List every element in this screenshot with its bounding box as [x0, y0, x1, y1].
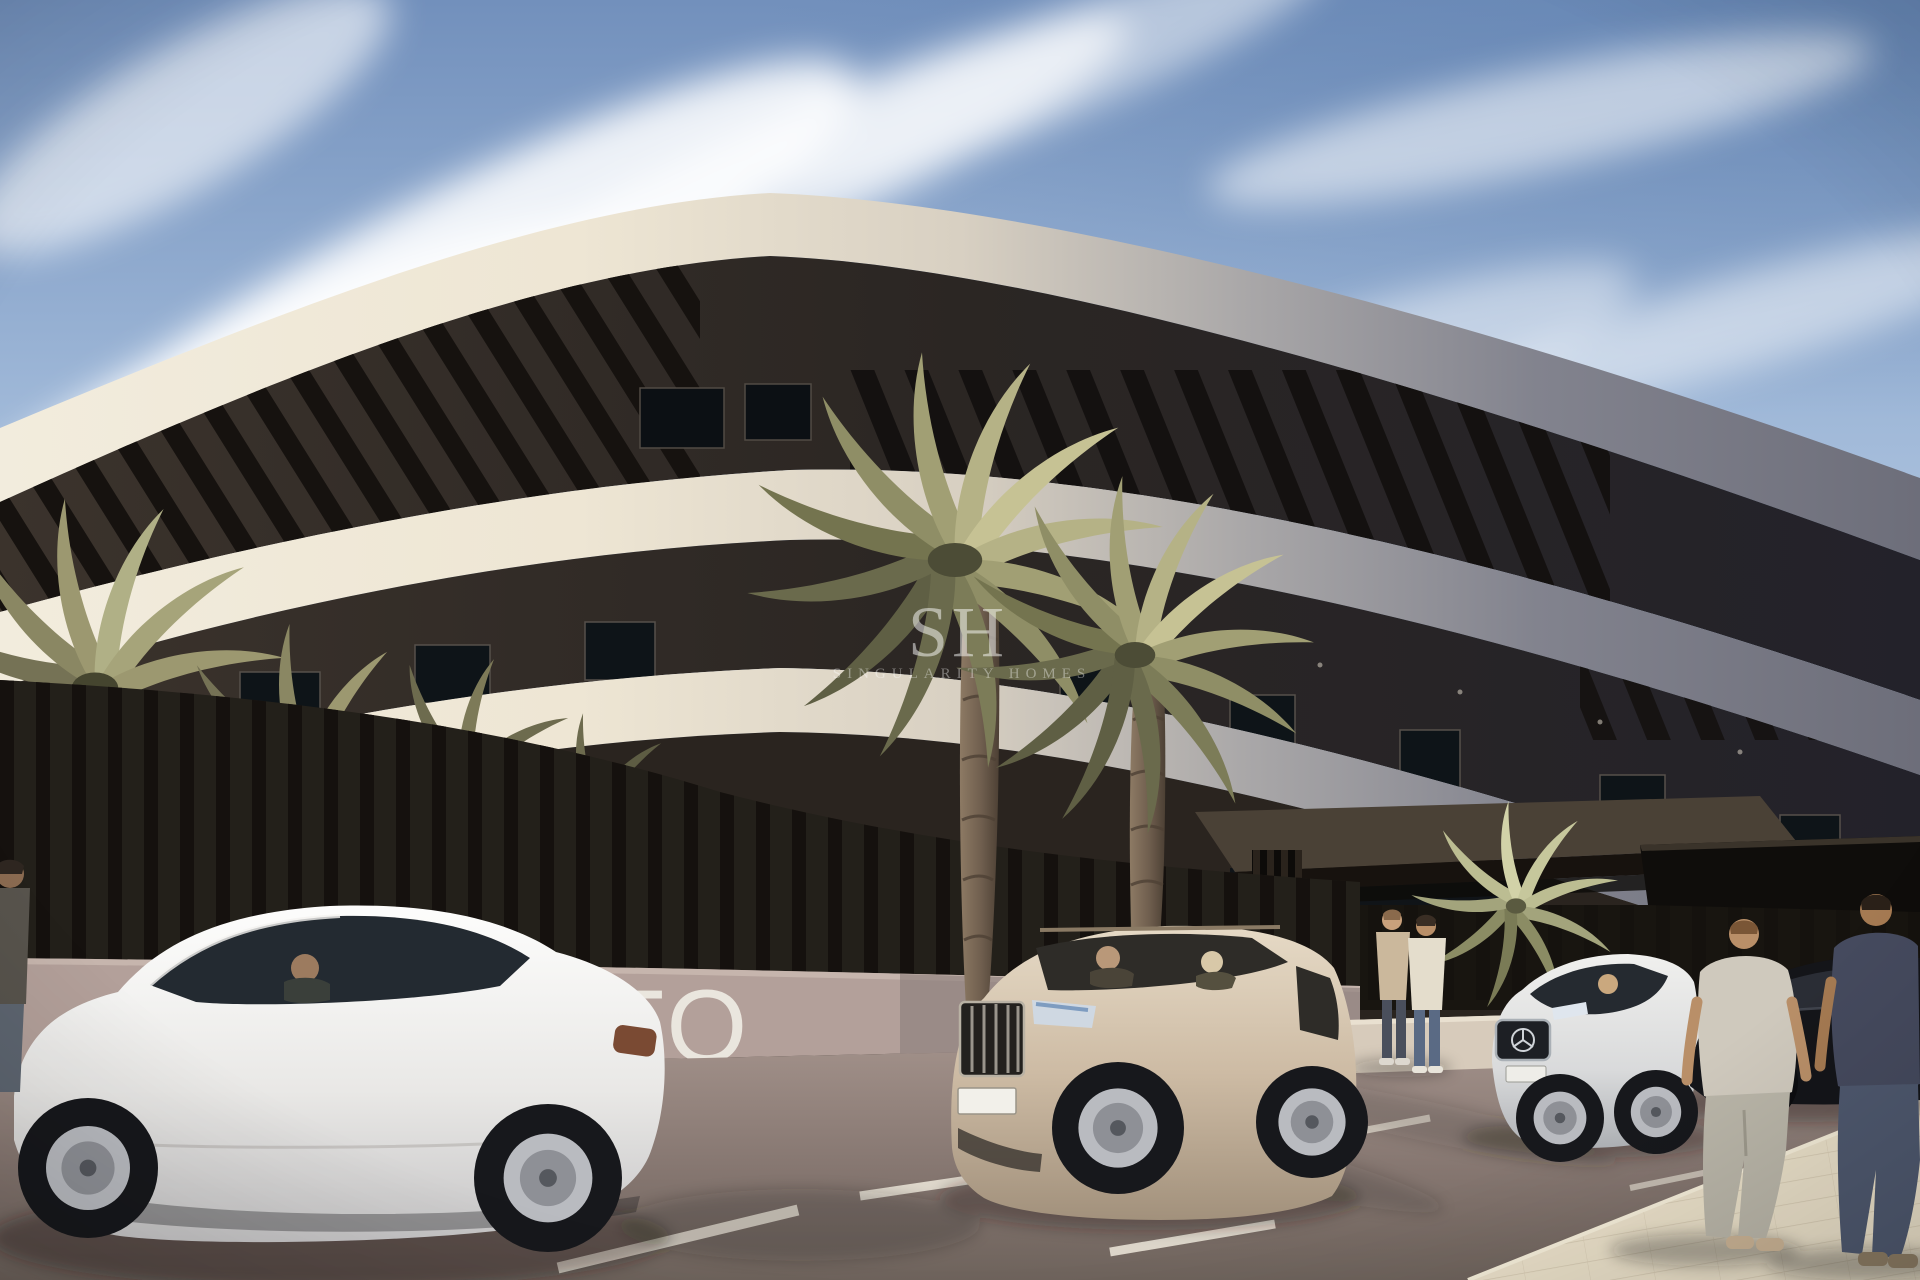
vignette: [0, 0, 1920, 1280]
scene-svg: TO: [0, 0, 1920, 1280]
architectural-render: TO: [0, 0, 1920, 1280]
